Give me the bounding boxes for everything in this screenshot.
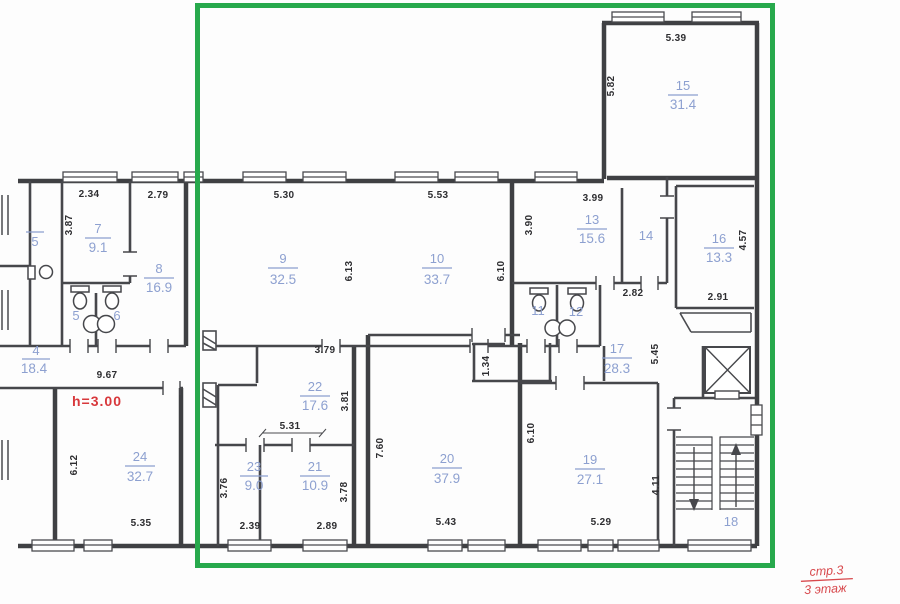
room-label-18: 18	[724, 514, 738, 529]
dimension-label: 2.34	[79, 189, 100, 200]
room-label-10: 1033.7	[422, 251, 452, 287]
svg-text:14: 14	[639, 228, 653, 243]
svg-text:31.4: 31.4	[670, 97, 697, 112]
room-label-7: 79.1	[85, 221, 111, 255]
room-label-16: 1613.3	[704, 231, 734, 265]
svg-text:5: 5	[72, 308, 79, 323]
svg-text:9.1: 9.1	[89, 240, 108, 255]
dimension-label: 9.67	[97, 370, 118, 381]
svg-text:20: 20	[440, 451, 454, 466]
exterior-walls	[18, 23, 759, 546]
svg-text:3 этаж: 3 этаж	[804, 581, 848, 597]
svg-text:9: 9	[279, 251, 286, 266]
dimension-label: 1.34	[481, 356, 492, 377]
dimension-label: 3.76	[219, 478, 230, 499]
dimension-label: 4.11	[651, 475, 662, 495]
svg-text:21: 21	[308, 459, 322, 474]
svg-text:33.7: 33.7	[424, 272, 450, 287]
room-label-14: 14	[639, 228, 653, 243]
room-label-6: 6	[113, 308, 120, 323]
dimension-label: 5.82	[606, 76, 617, 97]
dimension-label: 6.13	[344, 261, 355, 282]
dimension-label: 3.79	[315, 345, 336, 356]
room-label-22: 2217.6	[300, 379, 330, 413]
svg-text:32.7: 32.7	[127, 469, 153, 484]
svg-text:28.3: 28.3	[604, 361, 630, 376]
toilet-icon	[103, 286, 121, 309]
dimension-label: 5.43	[436, 517, 457, 528]
svg-text:13: 13	[585, 212, 599, 227]
svg-text:22: 22	[308, 379, 322, 394]
room-label-17: 1728.3	[602, 341, 632, 376]
room-label-5: 5	[72, 308, 79, 323]
room-label-20: 2037.9	[432, 451, 462, 486]
svg-text:18: 18	[724, 514, 738, 529]
dimension-label: 4.57	[738, 230, 749, 251]
room-labels: 1531.4 1315.6 14 1613.3 79.1 816.9 5 6 9…	[21, 78, 738, 529]
sink-icon	[84, 316, 115, 333]
room-label-8: 816.9	[144, 261, 174, 295]
dimension-label: 5.30	[274, 190, 295, 201]
svg-text:7: 7	[94, 221, 101, 236]
dimension-label: 3.99	[583, 193, 604, 204]
dimension-label: 6.10	[496, 261, 507, 282]
dimension-label: 5.45	[650, 344, 661, 365]
dimension-label: 2.39	[240, 521, 261, 532]
dimension-label: 7.60	[375, 438, 386, 459]
plan-details	[203, 313, 751, 437]
svg-text:12: 12	[569, 304, 583, 319]
svg-text:стр.3: стр.3	[809, 563, 844, 579]
dimension-label: 6.10	[526, 423, 537, 444]
svg-text:16: 16	[712, 231, 726, 246]
room-label-15: 1531.4	[668, 78, 698, 112]
wall-fragments-left-edge	[2, 195, 8, 480]
dimension-label: 6.12	[69, 455, 80, 476]
svg-text:19: 19	[583, 452, 597, 467]
dimension-label: 2.82	[623, 288, 644, 299]
elevator-icon	[705, 347, 750, 399]
room-label-12: 12	[569, 304, 583, 319]
svg-text:6: 6	[113, 308, 120, 323]
sink-icon	[28, 266, 53, 280]
svg-text:13.3: 13.3	[706, 250, 732, 265]
dimension-label: 5.35	[131, 518, 152, 529]
svg-text:27.1: 27.1	[577, 472, 603, 487]
svg-text:5: 5	[31, 234, 38, 249]
room-label-21: 2110.9	[300, 459, 330, 493]
room-label-23: 239.0	[240, 459, 268, 493]
dimension-label: 3.78	[339, 482, 350, 503]
room-label-19: 1927.1	[575, 452, 605, 487]
dimension-label: 5.31	[280, 421, 301, 432]
floor-plan-screenshot: 1531.4 1315.6 14 1613.3 79.1 816.9 5 6 9…	[0, 0, 900, 604]
floor-plan-drawing: 1531.4 1315.6 14 1613.3 79.1 816.9 5 6 9…	[0, 0, 900, 604]
page-floor-note: стр.3 3 этаж	[800, 563, 854, 598]
sink-icon	[545, 320, 575, 336]
dimension-label: 2.89	[317, 521, 338, 532]
dimension-label: 2.79	[148, 190, 169, 201]
dimension-label: 5.29	[591, 517, 612, 528]
room-label-24: 2432.7	[125, 449, 155, 484]
svg-text:17: 17	[610, 341, 624, 356]
svg-text:8: 8	[155, 261, 162, 276]
dimension-label: 2.91	[708, 292, 729, 303]
svg-text:15.6: 15.6	[579, 231, 605, 246]
svg-text:16.9: 16.9	[146, 280, 172, 295]
svg-text:9.0: 9.0	[245, 478, 264, 493]
svg-text:10.9: 10.9	[302, 478, 328, 493]
svg-text:18.4: 18.4	[21, 361, 48, 376]
svg-text:15: 15	[676, 78, 690, 93]
svg-text:32.5: 32.5	[270, 272, 296, 287]
svg-text:24: 24	[133, 449, 147, 464]
svg-text:4: 4	[32, 343, 39, 358]
dimension-label: 3.81	[340, 391, 351, 412]
svg-text:10: 10	[430, 251, 444, 266]
svg-text:11: 11	[531, 303, 545, 318]
dimension-label: 3.90	[524, 215, 535, 236]
svg-text:17.6: 17.6	[302, 398, 328, 413]
ceiling-height-note: h=3.00	[72, 393, 122, 409]
dimension-label: 5.53	[428, 190, 449, 201]
dimension-label: 5.39	[666, 33, 687, 44]
room-label-13: 1315.6	[577, 212, 607, 246]
room-label-4: 418.4	[21, 343, 50, 376]
toilet-icon	[71, 286, 89, 309]
dimension-label: 3.87	[64, 215, 75, 236]
stairs-icon	[676, 436, 754, 511]
svg-text:23: 23	[247, 459, 261, 474]
room-label-9: 932.5	[268, 251, 298, 287]
svg-text:37.9: 37.9	[434, 471, 460, 486]
room-label-11: 11	[531, 303, 545, 318]
